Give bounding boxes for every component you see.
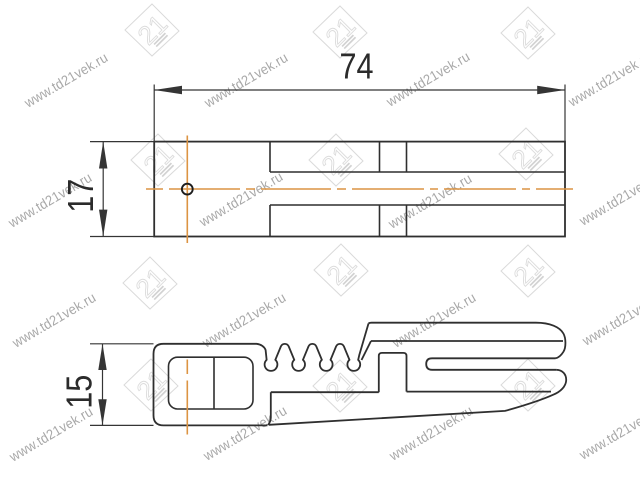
- svg-text:74: 74: [340, 45, 374, 86]
- svg-text:15: 15: [59, 375, 100, 409]
- svg-text:17: 17: [60, 179, 101, 213]
